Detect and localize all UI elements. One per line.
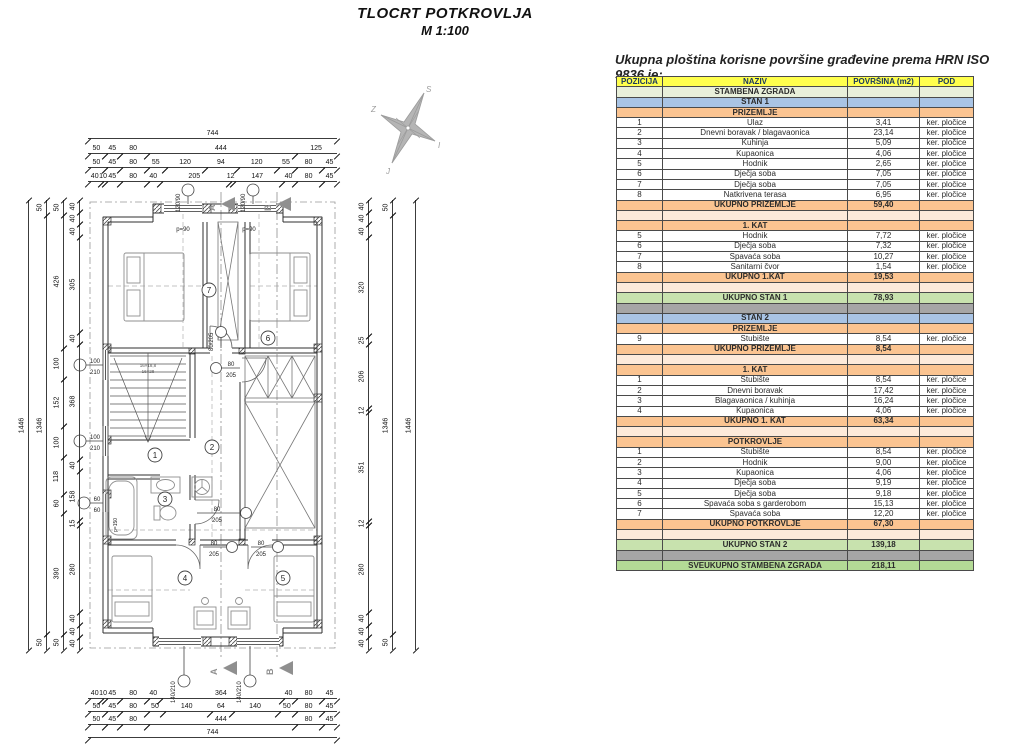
bath-window-w: 60	[94, 497, 101, 503]
dim-segment: 45	[105, 699, 120, 711]
parapet-label-1: p=90	[176, 227, 190, 233]
dim-segment: 55	[147, 155, 165, 167]
dim-segment: 125	[295, 141, 337, 153]
stairs-label-2: 16×28	[142, 369, 155, 374]
dim-segment: 1346	[380, 216, 392, 635]
dim-segment: 80	[120, 699, 147, 711]
section-a-label-bottom: A	[209, 668, 219, 675]
stair-window-w-1: 100	[90, 359, 101, 365]
dim-chain-right-3: 1446	[403, 200, 416, 650]
dim-segment: 45	[322, 712, 337, 724]
dim-segment: 426	[51, 216, 63, 349]
dim-segment: 444	[147, 141, 296, 153]
dim-chain-left-2: 50134650	[34, 200, 47, 650]
section-a-label-top: A	[207, 204, 217, 211]
dim-segment: 280	[67, 526, 79, 613]
dim-chain-top-4: 401045804020512147408045	[88, 169, 337, 182]
dim-chain-top-2: 504580444125	[88, 141, 337, 154]
interior-walls	[108, 222, 317, 545]
dim-segment: 40	[282, 686, 295, 698]
dim-segment: 50	[88, 699, 105, 711]
section-a-arrow-top	[221, 197, 235, 211]
dim-segment: 320	[356, 237, 368, 337]
dim-chain-left-4: 404040305403684015815280404040	[67, 200, 80, 650]
dim-chain-bottom-2: 5045805014064140508045	[88, 699, 337, 712]
dim-segment: 390	[51, 513, 63, 634]
compass-s: J	[385, 167, 391, 176]
dim-segment: 40	[67, 225, 79, 237]
dim-chain-bottom-1: 4010458040364408045	[88, 686, 337, 699]
dim-segment: 80	[295, 699, 322, 711]
dim-segment: 45	[322, 169, 337, 181]
dim-segment: 80	[295, 712, 322, 724]
dim-segment: 50	[34, 200, 46, 216]
compass-n: S	[426, 85, 432, 94]
room-1: 1	[153, 451, 158, 460]
dim-segment: 50	[88, 141, 105, 153]
dim-segment: 40	[67, 212, 79, 224]
dim-segment: 1346	[34, 216, 46, 635]
door-4-w: 80	[211, 541, 218, 547]
dim-segment: 744	[88, 126, 337, 138]
dim-segment: 45	[105, 141, 120, 153]
section-b-label-bottom: B	[265, 668, 275, 675]
compass-rose: S Z I J	[370, 85, 441, 176]
dim-segment: 100	[51, 427, 63, 458]
dim-segment: 80	[120, 686, 147, 698]
dim-chain-top-3: 5045805512094120558045	[88, 155, 337, 168]
page: { "title": {"line1": "TLOCRT POTKROVLJA"…	[0, 0, 1024, 751]
dim-segment: 206	[356, 345, 368, 409]
window-top-label-1: 120/90	[176, 193, 182, 212]
dim-segment: 80	[120, 712, 147, 724]
stair-window-h-2: 210	[90, 446, 101, 452]
dim-segment: 744	[88, 725, 337, 737]
dim-segment: 364	[160, 686, 282, 698]
dim-segment: 45	[105, 169, 120, 181]
dim-chain-right-2: 50134650	[380, 200, 393, 650]
dim-segment: 50	[51, 200, 63, 216]
compass-e: I	[438, 141, 441, 150]
dim-segment: 40	[356, 625, 368, 637]
door-3-w: 80	[214, 507, 221, 513]
dim-segment: 1446	[16, 200, 28, 650]
dim-segment: 100	[51, 348, 63, 379]
dim-segment: 45	[105, 686, 120, 698]
stairs-label-1: 16×18,8	[140, 363, 157, 368]
dim-segment: 64	[210, 699, 231, 711]
dim-segment: 80	[295, 686, 322, 698]
door-5-h: 205	[256, 552, 267, 558]
dim-segment: 140	[232, 699, 279, 711]
dim-segment: 55	[277, 155, 295, 167]
dim-segment: 50	[34, 634, 46, 650]
room-4: 4	[183, 574, 188, 583]
compass-w: Z	[370, 105, 377, 114]
dim-segment: 50	[88, 712, 105, 724]
window-top-label-2: 120/90	[241, 193, 247, 212]
stair-window-h-1: 210	[90, 370, 101, 376]
dim-segment: 158	[67, 472, 79, 521]
dim-segment: 50	[51, 634, 63, 650]
dim-chain-bottom-4: 744	[88, 725, 337, 738]
room-5: 5	[281, 574, 286, 583]
room-3: 3	[163, 495, 168, 504]
door-5-w: 80	[258, 541, 265, 547]
room-7: 7	[207, 286, 212, 295]
dim-segment: 140	[163, 699, 210, 711]
dim-segment: 152	[51, 379, 63, 426]
dim-segment: 40	[67, 613, 79, 625]
dim-segment: 25	[356, 337, 368, 345]
dim-segment: 80	[120, 155, 147, 167]
dim-segment: 45	[105, 155, 120, 167]
dim-segment: 280	[356, 526, 368, 613]
door-label-7: 80/205	[209, 332, 215, 351]
dim-segment: 40	[356, 613, 368, 625]
section-b-label-top: B	[263, 204, 273, 211]
dim-segment: 40	[67, 638, 79, 650]
dim-segment: 40	[67, 625, 79, 637]
dim-segment: 40	[356, 212, 368, 224]
section-b-arrow-bottom	[279, 661, 293, 675]
dim-chain-left-1: 1446	[16, 200, 29, 650]
dim-segment: 80	[295, 169, 322, 181]
dim-segment: 50	[147, 699, 164, 711]
door-4-h: 205	[209, 552, 220, 558]
parapet-label-2: p=90	[242, 227, 256, 233]
dim-segment: 45	[322, 686, 337, 698]
dim-segment: 40	[67, 200, 79, 212]
dim-segment: 40	[147, 169, 160, 181]
dim-segment: 80	[120, 141, 147, 153]
dim-segment: 50	[380, 200, 392, 216]
dim-segment: 50	[88, 155, 105, 167]
floor-plan: 16×18,8 16×28	[0, 0, 1024, 751]
room-6: 6	[266, 334, 271, 343]
dim-segment: 368	[67, 345, 79, 460]
door-6-h: 205	[226, 373, 237, 379]
dim-segment: 40	[282, 169, 295, 181]
dim-segment: 50	[380, 634, 392, 650]
dim-segment: 40	[67, 332, 79, 344]
section-a-arrow-bottom	[223, 661, 237, 675]
dim-segment: 1446	[403, 200, 415, 650]
dim-segment: 305	[67, 237, 79, 332]
door-3-h: 205	[212, 518, 223, 524]
dim-chain-left-3: 504261001521001186039050	[51, 200, 64, 650]
dim-segment: 147	[233, 169, 282, 181]
dim-segment: 45	[105, 712, 120, 724]
dim-chain-top-1: 744	[88, 126, 337, 139]
dim-segment: 50	[278, 699, 295, 711]
dim-chain-bottom-3: 5045804448045	[88, 712, 337, 725]
room-2: 2	[210, 443, 215, 452]
dim-segment: 120	[165, 155, 205, 167]
bath-parapet-label: p=150	[113, 518, 119, 532]
door-6-w: 80	[228, 362, 235, 368]
dim-segment: 94	[205, 155, 236, 167]
dim-segment: 40	[356, 638, 368, 650]
dim-segment: 40	[356, 225, 368, 237]
dim-segment: 40	[67, 459, 79, 471]
dim-segment: 40	[356, 200, 368, 212]
dim-segment: 80	[295, 155, 322, 167]
dim-segment: 80	[120, 169, 147, 181]
dim-segment: 45	[322, 699, 337, 711]
dim-segment: 444	[147, 712, 296, 724]
dim-segment: 40	[147, 686, 160, 698]
dim-segment: 60	[51, 494, 63, 513]
dim-segment: 45	[322, 155, 337, 167]
stair-window-w-2: 100	[90, 435, 101, 441]
dim-segment: 205	[160, 169, 229, 181]
dim-segment: 118	[51, 458, 63, 495]
dim-chain-right-1: 404040320252061235112280404040	[356, 200, 369, 650]
dim-segment: 120	[237, 155, 277, 167]
bath-window-h: 60	[94, 508, 101, 514]
dim-segment: 351	[356, 413, 368, 522]
